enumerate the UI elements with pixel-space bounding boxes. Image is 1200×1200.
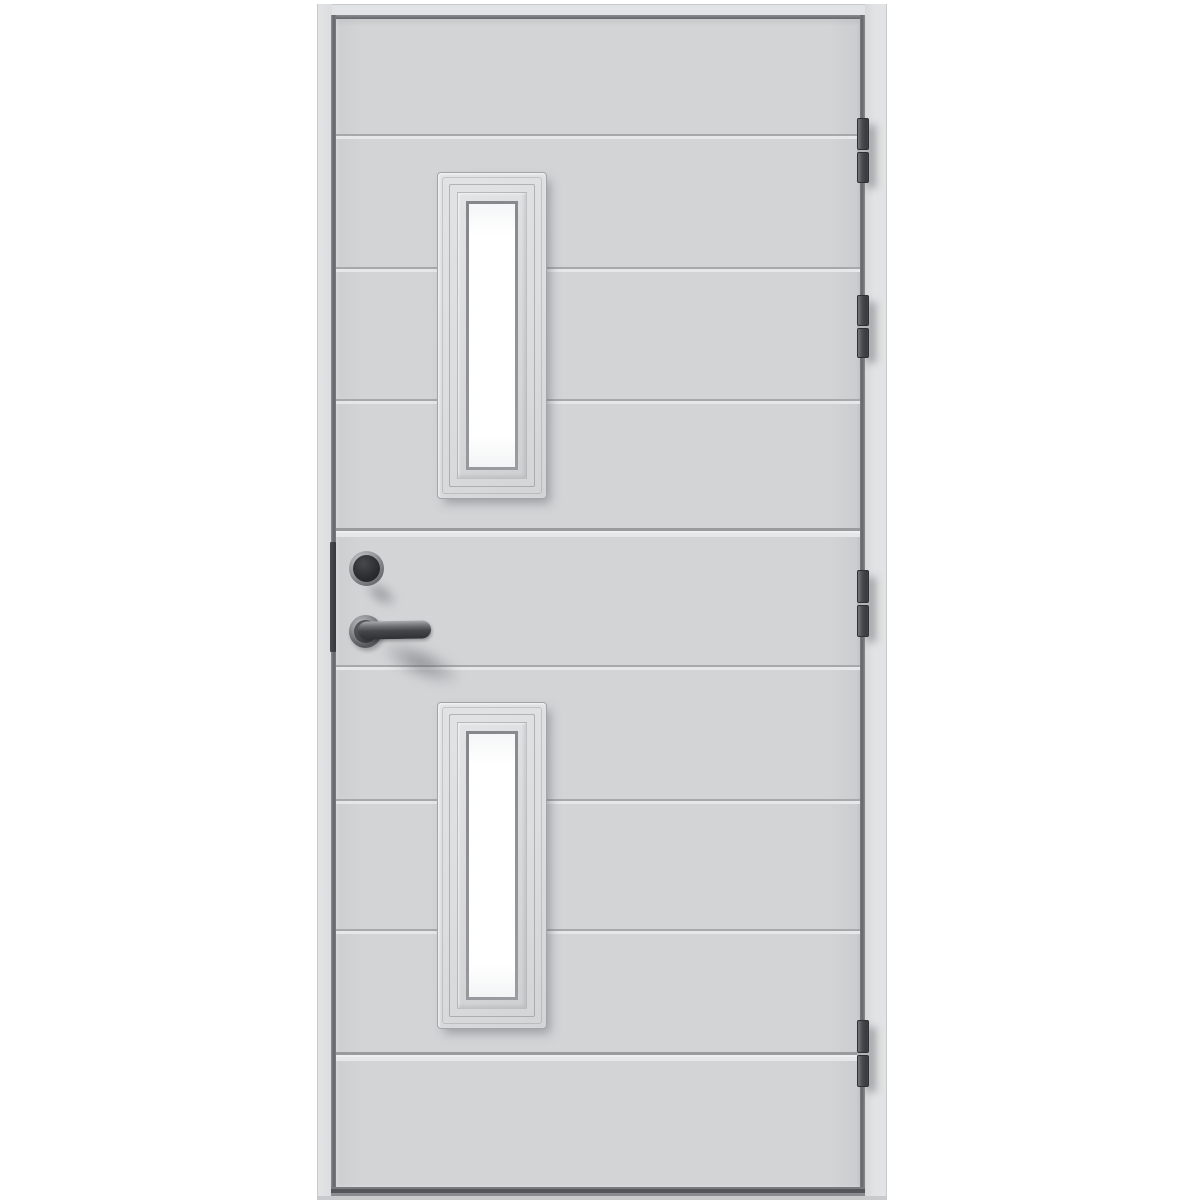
window-glass — [469, 734, 515, 997]
hinge-barrel — [857, 328, 869, 359]
handle-lever — [358, 620, 431, 639]
hinge-barrel — [857, 152, 869, 184]
door-threshold — [317, 1196, 886, 1200]
hinge-barrel — [857, 1055, 869, 1088]
lock-faceplate — [330, 542, 336, 652]
hinge-barrel — [857, 570, 869, 603]
lock-cylinder — [349, 551, 384, 586]
door-leaf — [336, 19, 860, 1187]
hinge-top — [857, 118, 869, 183]
lock-cylinder-core — [353, 555, 380, 582]
hinge-barrel — [857, 1020, 869, 1053]
hinge-barrel — [857, 605, 869, 638]
hinge-bottom — [857, 1020, 869, 1087]
product-photo-canvas — [0, 0, 1200, 1200]
plank-groove — [336, 267, 860, 272]
hinge-barrel — [857, 118, 869, 150]
plank-groove — [336, 929, 860, 934]
hinge-upper — [857, 295, 869, 358]
window-upper — [437, 172, 547, 499]
hinge-middle — [857, 570, 869, 637]
panel-seam — [336, 1052, 860, 1061]
window-lower — [437, 702, 547, 1029]
plank-groove — [336, 799, 860, 804]
hinge-barrel — [857, 295, 869, 326]
plank-groove — [336, 399, 860, 404]
panel-seam — [336, 528, 860, 537]
plank-groove — [336, 134, 860, 139]
window-glass — [469, 204, 515, 467]
door-bottom-edge — [331, 1187, 865, 1196]
